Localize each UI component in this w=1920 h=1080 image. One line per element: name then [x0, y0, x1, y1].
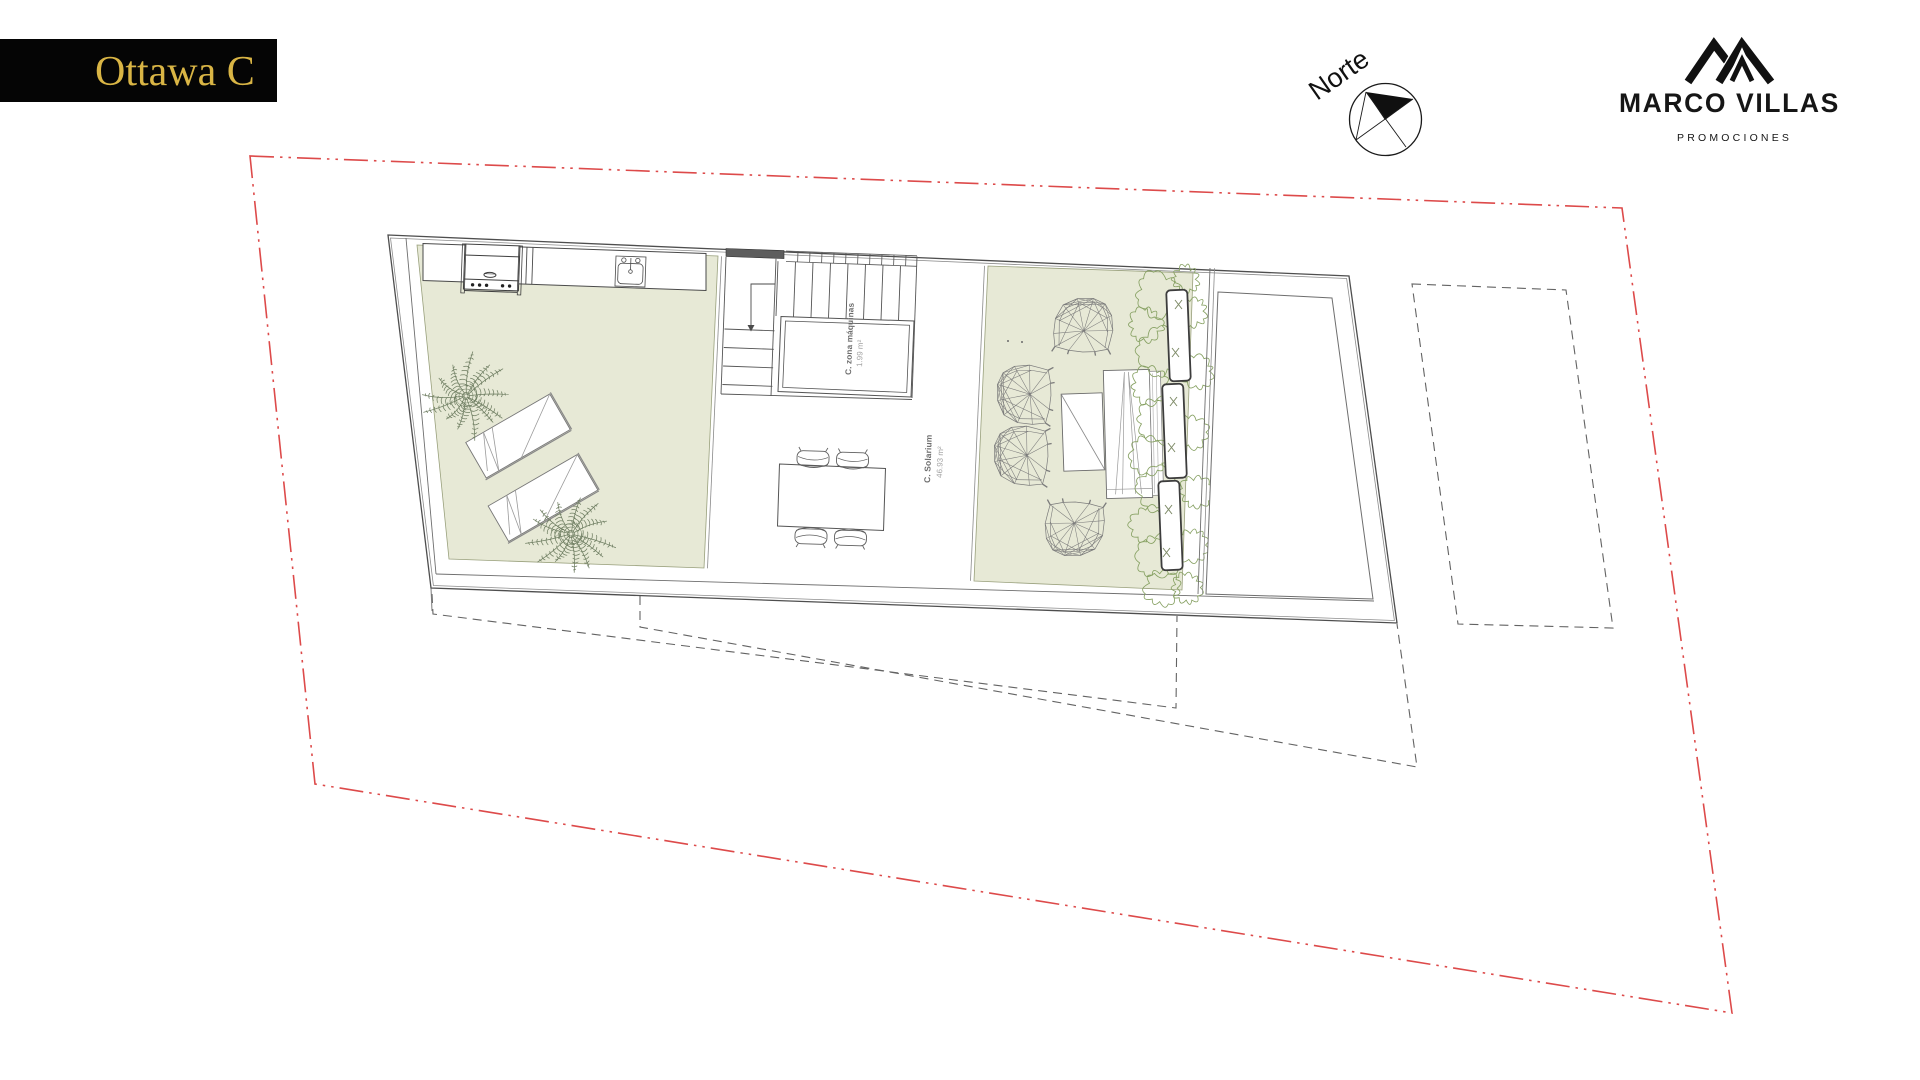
svg-text:Ottawa C: Ottawa C: [95, 49, 255, 95]
svg-text:MARCO VILLAS: MARCO VILLAS: [1619, 88, 1840, 118]
svg-text:46.93 m²: 46.93 m²: [935, 446, 945, 478]
svg-text:1.99 m²: 1.99 m²: [855, 339, 865, 367]
svg-text:C. Solarium: C. Solarium: [922, 434, 934, 483]
svg-text:PROMOCIONES: PROMOCIONES: [1677, 132, 1792, 144]
